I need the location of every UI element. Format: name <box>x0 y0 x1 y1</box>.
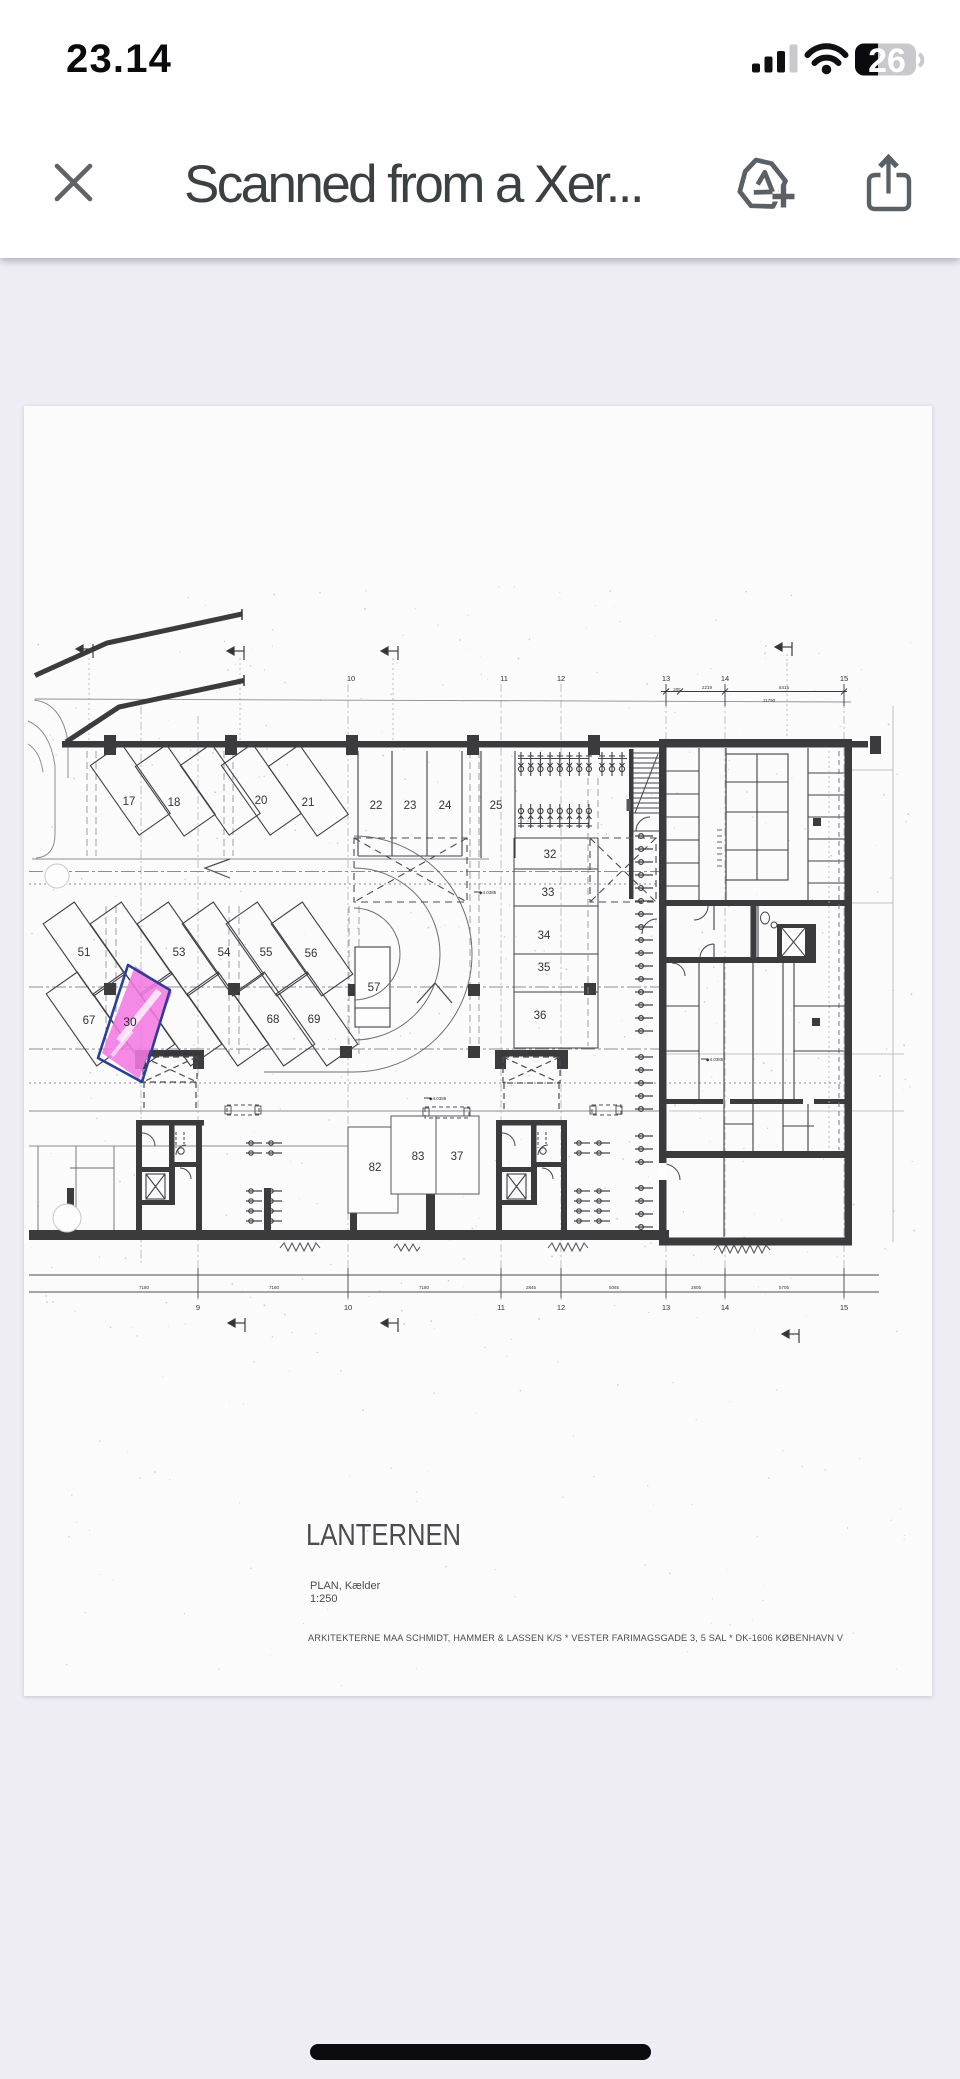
svg-text:12: 12 <box>557 674 565 683</box>
svg-text:26: 26 <box>868 42 906 80</box>
svg-text:5705: 5705 <box>779 1285 790 1290</box>
svg-text:30: 30 <box>123 1015 137 1029</box>
svg-text:7180: 7180 <box>139 1285 150 1290</box>
svg-text:21: 21 <box>302 797 315 809</box>
svg-text:2805: 2805 <box>691 1285 702 1290</box>
svg-text:10: 10 <box>347 674 355 683</box>
svg-text:12: 12 <box>557 1303 565 1312</box>
svg-text:14: 14 <box>721 674 729 683</box>
svg-text:PLAN, Kælder: PLAN, Kælder <box>310 1580 381 1592</box>
svg-text:32: 32 <box>544 849 557 861</box>
svg-text:57: 57 <box>368 982 381 994</box>
svg-text:2845: 2845 <box>526 1285 537 1290</box>
svg-text:55: 55 <box>260 947 273 959</box>
svg-text:13: 13 <box>662 1303 670 1312</box>
svg-text:9: 9 <box>196 1303 200 1312</box>
svg-text:33: 33 <box>542 887 555 899</box>
svg-text:34: 34 <box>538 930 551 942</box>
svg-text:23: 23 <box>404 800 417 812</box>
svg-text:22: 22 <box>370 800 383 812</box>
svg-text:36: 36 <box>534 1010 547 1022</box>
svg-text:11790: 11790 <box>763 698 776 703</box>
svg-text:2219: 2219 <box>702 685 713 690</box>
svg-text:25: 25 <box>490 800 503 812</box>
svg-text:15: 15 <box>840 674 848 683</box>
svg-text:14: 14 <box>721 1303 729 1312</box>
svg-text:54: 54 <box>218 947 231 959</box>
svg-text:18: 18 <box>168 797 181 809</box>
svg-text:◆4.0385 ◆4.0385: ◆4.0385 ◆4.0385 <box>164 1051 200 1056</box>
svg-text:11: 11 <box>500 674 508 683</box>
svg-text:53: 53 <box>173 947 186 959</box>
svg-text:24: 24 <box>439 800 452 812</box>
svg-text:11: 11 <box>497 1303 505 1312</box>
svg-text:8415: 8415 <box>779 685 790 690</box>
svg-text:83: 83 <box>412 1151 425 1163</box>
svg-text:10: 10 <box>344 1303 352 1312</box>
svg-text:56: 56 <box>305 948 318 960</box>
svg-text:37: 37 <box>451 1151 464 1163</box>
svg-text:205: 205 <box>673 687 681 692</box>
svg-text:LANTERNEN: LANTERNEN <box>306 1517 461 1552</box>
svg-text:5065: 5065 <box>609 1285 620 1290</box>
svg-text:1:250: 1:250 <box>310 1593 338 1605</box>
svg-text:ARKITEKTERNE MAA SCHMIDT, HAMM: ARKITEKTERNE MAA SCHMIDT, HAMMER & LASSE… <box>308 1633 844 1643</box>
svg-text:68: 68 <box>267 1014 280 1026</box>
svg-text:82: 82 <box>369 1162 382 1174</box>
svg-text:67: 67 <box>83 1015 96 1027</box>
svg-text:13: 13 <box>662 674 670 683</box>
svg-text:◆4.0385: ◆4.0385 <box>706 1057 724 1062</box>
svg-text:69: 69 <box>308 1014 321 1026</box>
svg-text:17: 17 <box>123 796 136 808</box>
svg-text:20: 20 <box>255 795 268 807</box>
svg-text:51: 51 <box>78 947 91 959</box>
svg-text:15: 15 <box>840 1303 848 1312</box>
svg-text:35: 35 <box>538 962 551 974</box>
svg-text:◆4.0385: ◆4.0385 <box>479 890 497 895</box>
svg-text:7180: 7180 <box>419 1285 430 1290</box>
svg-text:7180: 7180 <box>269 1285 280 1290</box>
svg-text:◆4.0385: ◆4.0385 <box>429 1096 447 1101</box>
